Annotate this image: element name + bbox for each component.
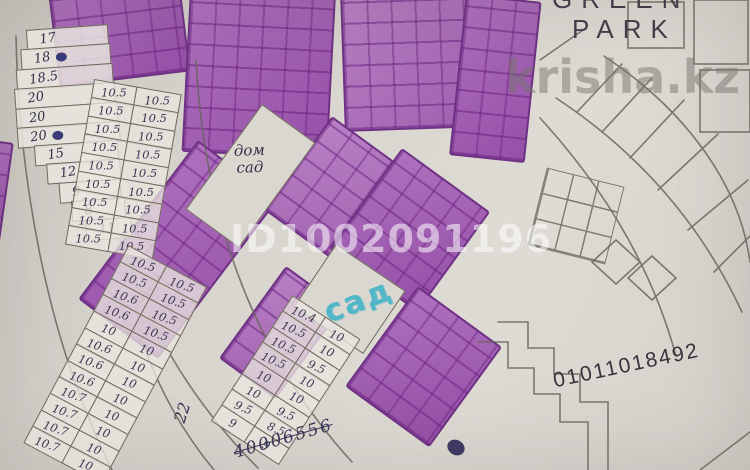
plot-size-label: 10.5 [144, 93, 170, 107]
house-garden-line2: сад [234, 159, 266, 177]
plot-size-label: 10.5 [131, 166, 157, 180]
plot-size-label: 10.5 [95, 122, 121, 136]
plot-size-label: 10.5 [141, 111, 167, 125]
plot-size-label: 20 [28, 109, 47, 126]
plot-size-label: 15 [46, 145, 65, 162]
plot-size-label: 10.5 [88, 159, 114, 173]
plot-size-label: 10.5 [85, 177, 111, 191]
plot-size-label: 10.5 [128, 185, 154, 199]
plot-size-label: 10.5 [122, 221, 148, 235]
complex-name-line1: GREEN [552, 0, 689, 15]
plot-size-label: 20 [27, 89, 46, 106]
listing-id-watermark: ID1002091196 [230, 217, 552, 261]
plot-size-label: 10.5 [101, 85, 127, 99]
ink-dot [52, 131, 64, 141]
house-garden-note: дом сад [234, 142, 266, 177]
plot-size-label: 10 [77, 456, 95, 470]
plot-size-label: 10.5 [79, 214, 105, 228]
plot-map-photo: 17 18 18.5 20 20 20 [0, 0, 750, 470]
plot-size-label: 9 [227, 415, 239, 431]
krisha-kz-watermark: krisha.kz [505, 50, 740, 104]
plot-size-label: 10.5 [125, 203, 151, 217]
plot-size-label: 12 [59, 164, 78, 181]
plot-size-label: 10.5 [135, 148, 161, 162]
plot-size-label: 17 [38, 30, 57, 47]
plot-size-label: 10.5 [138, 130, 164, 144]
plot-size-label: 20 [29, 128, 48, 145]
plot-size-label: 18.5 [28, 68, 59, 87]
plot-size-label: 10.5 [92, 140, 118, 154]
ink-dot [55, 52, 67, 62]
plot-size-label: 10.5 [76, 232, 102, 246]
complex-name-line2: PARK [572, 14, 677, 45]
plot-size-label: 18 [33, 50, 52, 67]
plot-size-label: 10.5 [82, 195, 108, 209]
plot-size-label: 10.5 [98, 104, 124, 118]
